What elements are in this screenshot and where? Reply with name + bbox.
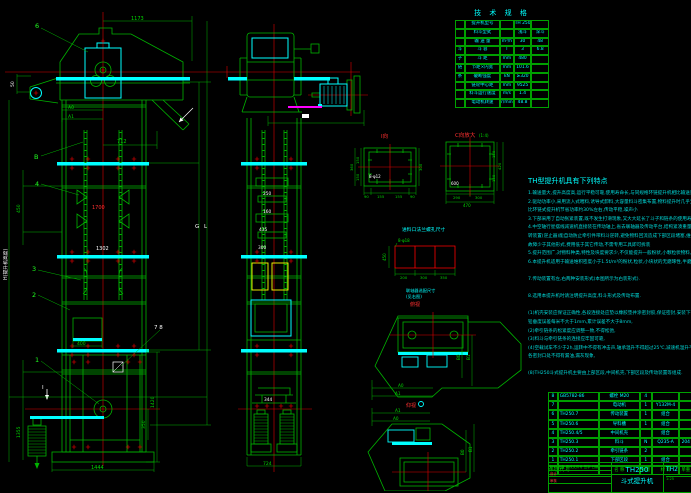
parts-rows: 8 GB5782-86 螺栓 M20 4 7 电动机 1 Y132M-4 6 [548, 392, 691, 466]
bg-note1: 联轴器选配尺寸 [406, 287, 435, 294]
part-code: TH250.4/5 [558, 429, 599, 438]
spec-unit: mm [500, 64, 514, 73]
dim-344: 344 [264, 397, 272, 403]
tv1-A0: A0 [398, 383, 404, 388]
part-material: 组合 [652, 410, 679, 419]
product-name: 斗式提升机 [611, 475, 663, 485]
dimension-texts: 1173 712 A0 A1 400 1444 50 450 1355 1420… [2, 16, 272, 471]
bolt-pattern-title: 进料口法兰螺孔尺寸 [402, 226, 445, 233]
part-no: 2 [548, 447, 558, 456]
dim-712: 712 [117, 139, 127, 145]
parts-row: 7 电动机 1 Y132M-4 [548, 401, 691, 410]
part-material: Q235-A [652, 438, 679, 447]
part-code: TH250.3 [558, 438, 599, 447]
spec-value-2 [531, 73, 549, 82]
part-qty [640, 429, 653, 438]
dim-A1: A1 [68, 114, 74, 120]
view-label-C: C向放大 [455, 131, 476, 139]
flange-detail-C [440, 138, 503, 204]
callout-2: 2 [32, 291, 36, 299]
note-line: 故障少于其他形式,费用低于其它传动,不需专用工具即可拆装 [528, 242, 691, 251]
takeup-arm [30, 416, 104, 419]
part-name: 传动装置 [599, 410, 639, 419]
part-no: 6 [548, 410, 558, 419]
note-line: (2)牵引链条的松紧度应调整一致,不得松弛, [528, 328, 691, 337]
dim-250: 250 [263, 191, 271, 197]
spec-unit: m³/h [500, 38, 514, 47]
spec-value-2 [531, 90, 549, 99]
scale-value: 1:25 [666, 476, 691, 481]
spec-value-2 [531, 55, 549, 64]
tv2-A1: A1 [395, 408, 401, 413]
callout-7-8: 7 8 [154, 325, 163, 331]
parts-row: 8 GB5782-86 螺栓 M20 4 [548, 392, 691, 401]
spec-value-1: 48.8 [514, 99, 532, 108]
spec-unit: kN [500, 73, 514, 82]
note-line: 8.选用本提升机时请注明提升高度,料斗形式及传动布置. [528, 293, 691, 302]
spec-label: 破断强度 [465, 73, 500, 82]
inspection-doors-yellow [252, 263, 288, 290]
cad-screenshot: { "spec_table": { "title": "技 术 规 格", "r… [0, 0, 691, 491]
spec-unit: l [500, 46, 514, 55]
spec-group: 斗 [455, 46, 465, 55]
inspection-door-front [73, 318, 102, 341]
note-line: 2.驱动功率小,采用流入式喂料,诱导式卸料,大容量料斗密集布置,物料提升时几乎无… [528, 199, 691, 208]
fi-155b: 155 [395, 194, 403, 199]
part-no: 4 [548, 429, 558, 438]
part-unit-weight [679, 420, 691, 429]
fc-300: 300 [475, 195, 483, 200]
drive-bottom-view [368, 402, 474, 492]
tech-spec-table: 技 术 规 格 提升机型号 TH 250 料斗型式 浅斗 深斗 输 送 量 [455, 8, 549, 108]
spec-row: 子 斗 距 mm 480 [455, 55, 549, 64]
part-qty: 1 [640, 410, 653, 419]
spec-value-2 [531, 64, 549, 73]
note-line: 4.中空轴行星摆线减速机直接装在传动轴上,省去联轴器及传动平台,结构紧凑重量轻,… [528, 224, 691, 233]
spec-value-1: 浅斗 [514, 29, 532, 38]
part-name: 中间机壳 [599, 429, 639, 438]
part-name: 电动机 [599, 401, 639, 410]
parts-row: 6 TH250.7 传动装置 1 组合 [548, 410, 691, 419]
fc-470: 470 [463, 203, 471, 208]
callout-numbers: 6 B 4 3 2 1 [32, 22, 39, 364]
spec-label: 电动机转速 [465, 99, 500, 108]
part-code: GB5782-86 [558, 392, 599, 401]
fi-150b: 150 [355, 173, 360, 181]
spec-unit: r/min [500, 99, 514, 108]
jib-arm [30, 78, 58, 103]
part-material: 组合 [652, 420, 679, 429]
spec-row: 链轮中心距 mm 9525 [455, 82, 549, 91]
spec-value-1: TH 250 [514, 20, 532, 29]
parts-row: 2 TH250.2 牵引链条 2 [548, 447, 691, 456]
fi-360: 360 [349, 163, 354, 171]
tv2-B0: B0 [460, 449, 465, 455]
note-line [528, 267, 691, 276]
head-side [247, 33, 294, 97]
front-elevation-view [9, 16, 211, 472]
note-line: 6.本提升机适用于输送堆积密度小于1.5t/m³的粉状,粒状,小块状的无磨琢性,… [528, 259, 691, 268]
spec-value-2 [531, 82, 549, 91]
tv2-B1: B1 [468, 446, 473, 452]
dim-H: H(提升机高度) [2, 249, 9, 280]
tv1-A1: A1 [395, 391, 401, 396]
view-label-top: 俯视 [410, 301, 420, 308]
spec-value-1: 9525 [514, 82, 532, 91]
part-unit-weight [679, 429, 691, 438]
spec-unit [500, 20, 514, 29]
spec-value-1: 1.4 [514, 90, 532, 99]
part-code: TH250.6 [558, 420, 599, 429]
fc-150b: 150 [491, 174, 496, 182]
tv2-A0: A0 [393, 416, 399, 421]
bg-450: 450 [382, 253, 387, 261]
dim-435: 435 [259, 227, 267, 233]
spec-row: 料斗型式 浅斗 深斗 [455, 29, 549, 38]
spec-value-2: 48 [531, 38, 549, 47]
backstop [311, 44, 319, 53]
note-line [528, 362, 691, 371]
note-line: 5.提升范围广,对物料种类,特性及块度要求少,不仅能提升一般粉状,小颗粒状物料,… [528, 250, 691, 259]
spec-group: 子 [455, 55, 465, 64]
dim-50: 50 [10, 81, 16, 87]
note-line: 各密封口处不得有漏油,漏灰现象, [528, 353, 691, 362]
dim-160: 160 [263, 209, 271, 215]
note-line: 比环链式提升机节省功率约30%左右,传动平稳,噪声小 [528, 207, 691, 216]
view-label-I: I向 [381, 132, 388, 140]
spec-value-2: 深斗 [531, 29, 549, 38]
title-block-number: TH2 1:25 [663, 463, 691, 492]
fi-90b: 90 [410, 194, 415, 199]
bg-holes: 8-φ18 [398, 238, 410, 243]
callout-1: 1 [35, 356, 39, 364]
detail-view-texts: I向 90 155 155 90 150 150 360 300 8-φ12 C… [349, 131, 502, 455]
centerlines [5, 12, 368, 472]
note-line [528, 302, 691, 311]
title-block-revision-grid: 标记 处数 更改文件号 签字 日期 设计 审核 [549, 463, 612, 492]
model-number: TH250 [611, 466, 663, 474]
spec-value-1: 480 [514, 55, 532, 64]
part-material [652, 447, 679, 456]
title-block: 标记 处数 更改文件号 签字 日期 设计 审核 TH250 斗式提升机 TH2 … [548, 462, 691, 493]
part-name: 导料槽 [599, 420, 639, 429]
spec-label: 料斗运行速度 [465, 90, 500, 99]
part-material: Y132M-4 [652, 401, 679, 410]
dim-1444: 1444 [91, 465, 104, 471]
fc-scale: (1:4) [479, 133, 489, 138]
spec-label: 斗 容 [465, 46, 500, 55]
spec-value-1: 3 [514, 46, 532, 55]
spec-group [455, 90, 465, 99]
bg-200: 200 [400, 275, 408, 280]
spec-unit [500, 29, 514, 38]
dim-400: 400 [77, 341, 86, 347]
note-line: 1.输送量大,提升高度高,运行平稳可靠,使用寿命长,与同规格环链提升机相比输送量… [528, 190, 691, 199]
part-unit-weight [679, 401, 691, 410]
spec-group [455, 38, 465, 47]
part-qty: 4 [640, 392, 653, 401]
spec-group [455, 82, 465, 91]
spec-row: 料斗运行速度 m/s 1.4 [455, 90, 549, 99]
part-code [558, 401, 599, 410]
part-material [652, 392, 679, 401]
fi-90a: 90 [364, 194, 369, 199]
part-unit-weight: 204 [679, 438, 691, 447]
fc-290: 290 [453, 195, 461, 200]
notes-block: TH型提升机具有下列特点 1.输送量大,提升高度高,运行平稳可靠,使用寿命长,与… [528, 176, 691, 392]
spec-label: 提升机型号 [465, 20, 500, 29]
dim-724: 724 [263, 461, 272, 467]
checker-label: 审核 [550, 478, 557, 483]
dim-1700: 1700 [92, 205, 105, 211]
part-no: 7 [548, 401, 558, 410]
spec-value-2 [531, 99, 549, 108]
fc-600: 600 [451, 181, 459, 186]
bg-350: 350 [440, 275, 448, 280]
dim-450: 450 [16, 204, 22, 213]
notes-lines: 1.输送量大,提升高度高,运行平稳可靠,使用寿命长,与同规格环链提升机相比输送量… [528, 190, 691, 379]
fc-150a: 150 [491, 150, 496, 158]
view-label-bottom: 仰视 [406, 402, 416, 409]
part-code: TH250.2 [558, 447, 599, 456]
flange-detail-I [355, 144, 422, 195]
dim-350: 350 [141, 420, 147, 429]
part-unit-weight [679, 392, 691, 401]
designer-label: 设计 [550, 471, 557, 476]
title-block-name: TH250 斗式提升机 [611, 463, 663, 492]
spec-table-body: 提升机型号 TH 250 料斗型式 浅斗 深斗 输 送 量 m³/h 30 48 [455, 20, 549, 108]
tv1-B1: B1 [466, 354, 471, 360]
part-code: TH250.7 [558, 410, 599, 419]
inspection-door-side [251, 300, 291, 336]
spec-unit: m/s [500, 90, 514, 99]
bg-300: 300 [420, 275, 428, 280]
fi-300: 300 [418, 163, 423, 171]
spec-value-1: 101.6 [514, 64, 532, 73]
callout-6: 6 [35, 22, 39, 30]
spec-row: 电动机转速 r/min 48.8 [455, 99, 549, 108]
spec-label: 链轮中心距 [465, 82, 500, 91]
spec-row: 链 节距×内宽 mm 101.6 [455, 64, 549, 73]
spec-row: 提升机型号 TH 250 [455, 20, 549, 29]
note-line: 转装置(逆止器)能自动防止牵引件带料斗逆转,避免物料回流造成下部区段堵塞,维修量… [528, 233, 691, 242]
part-qty: 2 [640, 447, 653, 456]
tv1-B0: B0 [456, 354, 461, 360]
fi-155a: 155 [377, 194, 385, 199]
spec-value-2: 6.8 [531, 46, 549, 55]
note-line: 3.下部采用了自动张紧装置,既不发生打滑现象,又大大延长了斗子和链条的使用寿命,… [528, 216, 691, 225]
spec-value-2 [531, 20, 549, 29]
part-material: 组合 [652, 429, 679, 438]
dim-1355: 1355 [16, 426, 22, 438]
spec-value-1: ≥320 [514, 73, 532, 82]
spec-unit: mm [500, 55, 514, 64]
note-line: 7.传动装置有左,右两种安装形式(本图所示为右装形式). [528, 276, 691, 285]
spec-value-1: 30 [514, 38, 532, 47]
dim-1173: 1173 [131, 16, 144, 22]
spec-label: 节距×内宽 [465, 64, 500, 73]
part-no: 8 [548, 392, 558, 401]
spec-label: 料斗型式 [465, 29, 500, 38]
boot-section [62, 355, 146, 452]
spec-label: 输 送 量 [465, 38, 500, 47]
section-mark-I: I [42, 385, 44, 391]
part-qty: 1 [640, 401, 653, 410]
spec-row: 斗 斗 容 l 3 6.8 [455, 46, 549, 55]
part-unit-weight [679, 447, 691, 456]
revision-labels: 标记 处数 更改文件号 签字 日期 [550, 464, 598, 469]
notes-title: TH型提升机具有下列特点 [528, 176, 691, 186]
note-line: (8)TH250斗式提升机主要由上部区段,中间机壳,下部区段及传动装置等组成. [528, 370, 691, 379]
dim-G: G [195, 224, 199, 230]
dim-1302: 1302 [96, 246, 109, 252]
part-qty: N [640, 438, 653, 447]
part-no: 5 [548, 420, 558, 429]
callout-B: B [34, 153, 38, 161]
spec-group [455, 29, 465, 38]
part-name: 料斗 [599, 438, 639, 447]
spec-group: 链 [455, 64, 465, 73]
spec-group [455, 20, 465, 29]
inlet-flange-bolt-pattern [389, 243, 455, 276]
dim-A0: A0 [68, 105, 74, 111]
parts-row: 3 TH250.3 料斗 N Q235-A 204 [548, 438, 691, 447]
part-name: 螺栓 M20 [599, 392, 639, 401]
dim-300: 300 [258, 245, 266, 251]
side-elevation-view [228, 33, 364, 466]
spec-table-title: 技 术 规 格 [455, 8, 549, 18]
callout-3: 3 [32, 265, 36, 273]
fi-holes: 8-φ12 [369, 174, 381, 179]
note-line [528, 285, 691, 294]
note-line: (3)料斗与牵引链条的连接应牢固可靠, [528, 336, 691, 345]
service-platforms [30, 77, 190, 419]
part-qty: 1 [640, 420, 653, 429]
callout-4: 4 [35, 180, 39, 188]
spec-group [455, 99, 465, 108]
parts-row: 5 TH250.6 导料槽 1 组合 [548, 420, 691, 429]
fi-150a: 150 [355, 156, 360, 164]
parts-row: 4 TH250.4/5 中间机壳 组合 [548, 429, 691, 438]
spec-row: 输 送 量 m³/h 30 48 [455, 38, 549, 47]
coupling [354, 76, 360, 113]
fc-420: 420 [497, 162, 502, 170]
spec-unit: mm [500, 82, 514, 91]
note-line: (4)空载试车不少于2h,运转中不得有冲击声,轴承温升不得超过25℃,减速机温升… [528, 345, 691, 354]
spec-group: 条 [455, 73, 465, 82]
dim-L: L [204, 224, 208, 230]
part-unit-weight [679, 410, 691, 419]
drawing-number: TH2 [666, 466, 691, 473]
spec-label: 斗 距 [465, 55, 500, 64]
part-no: 3 [548, 438, 558, 447]
bg-note2: (见右图) [406, 293, 422, 300]
part-name: 牵引链条 [599, 447, 639, 456]
spec-row: 条 破断强度 kN ≥320 [455, 73, 549, 82]
note-line: 铅垂度误差每米不大于1mm,累计误差不大于8mm, [528, 319, 691, 328]
note-line: (1)机壳安装应保证正确性,各段连接处应垫以橡胶垫并涂密封胶,保证密封,安装下部… [528, 310, 691, 319]
discharge-chute [152, 100, 189, 130]
dim-1420: 1420 [150, 396, 156, 408]
